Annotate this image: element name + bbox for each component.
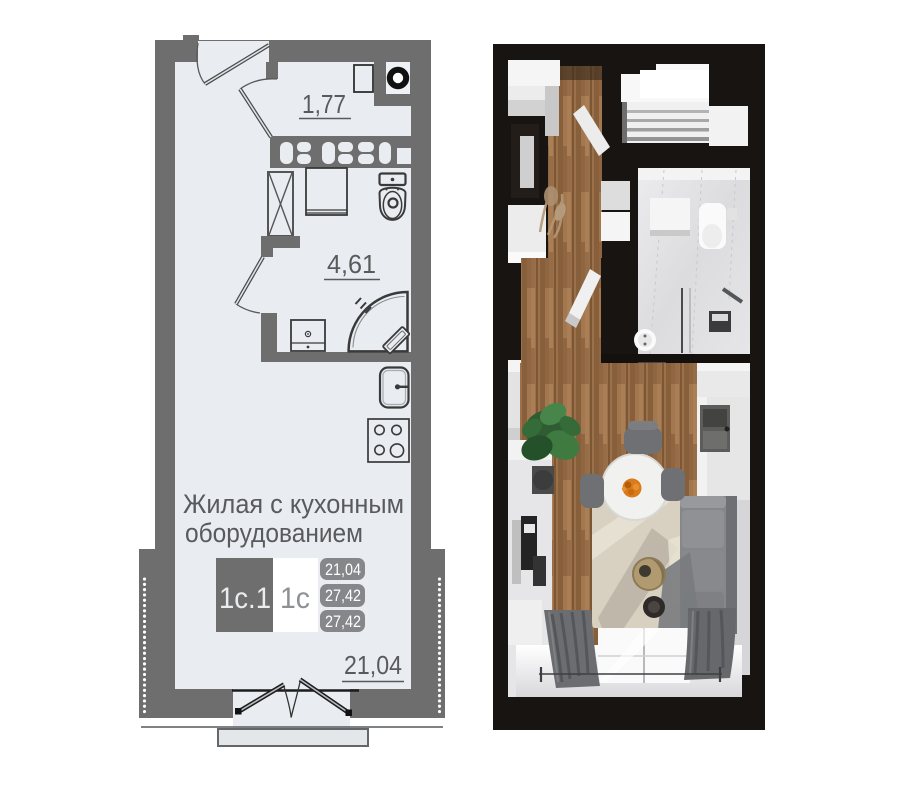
- svg-text:21,04: 21,04: [325, 560, 361, 579]
- svg-text:1с.1: 1с.1: [219, 582, 271, 615]
- svg-text:1с: 1с: [280, 582, 310, 615]
- svg-text:4,61: 4,61: [327, 249, 376, 279]
- svg-text:1,77: 1,77: [302, 89, 346, 119]
- svg-text:Жилая с кухонным: Жилая с кухонным: [183, 489, 404, 519]
- svg-text:27,42: 27,42: [325, 612, 361, 631]
- svg-text:27,42: 27,42: [325, 586, 361, 605]
- svg-text:21,04: 21,04: [344, 650, 402, 680]
- svg-text:оборудованием: оборудованием: [185, 518, 363, 548]
